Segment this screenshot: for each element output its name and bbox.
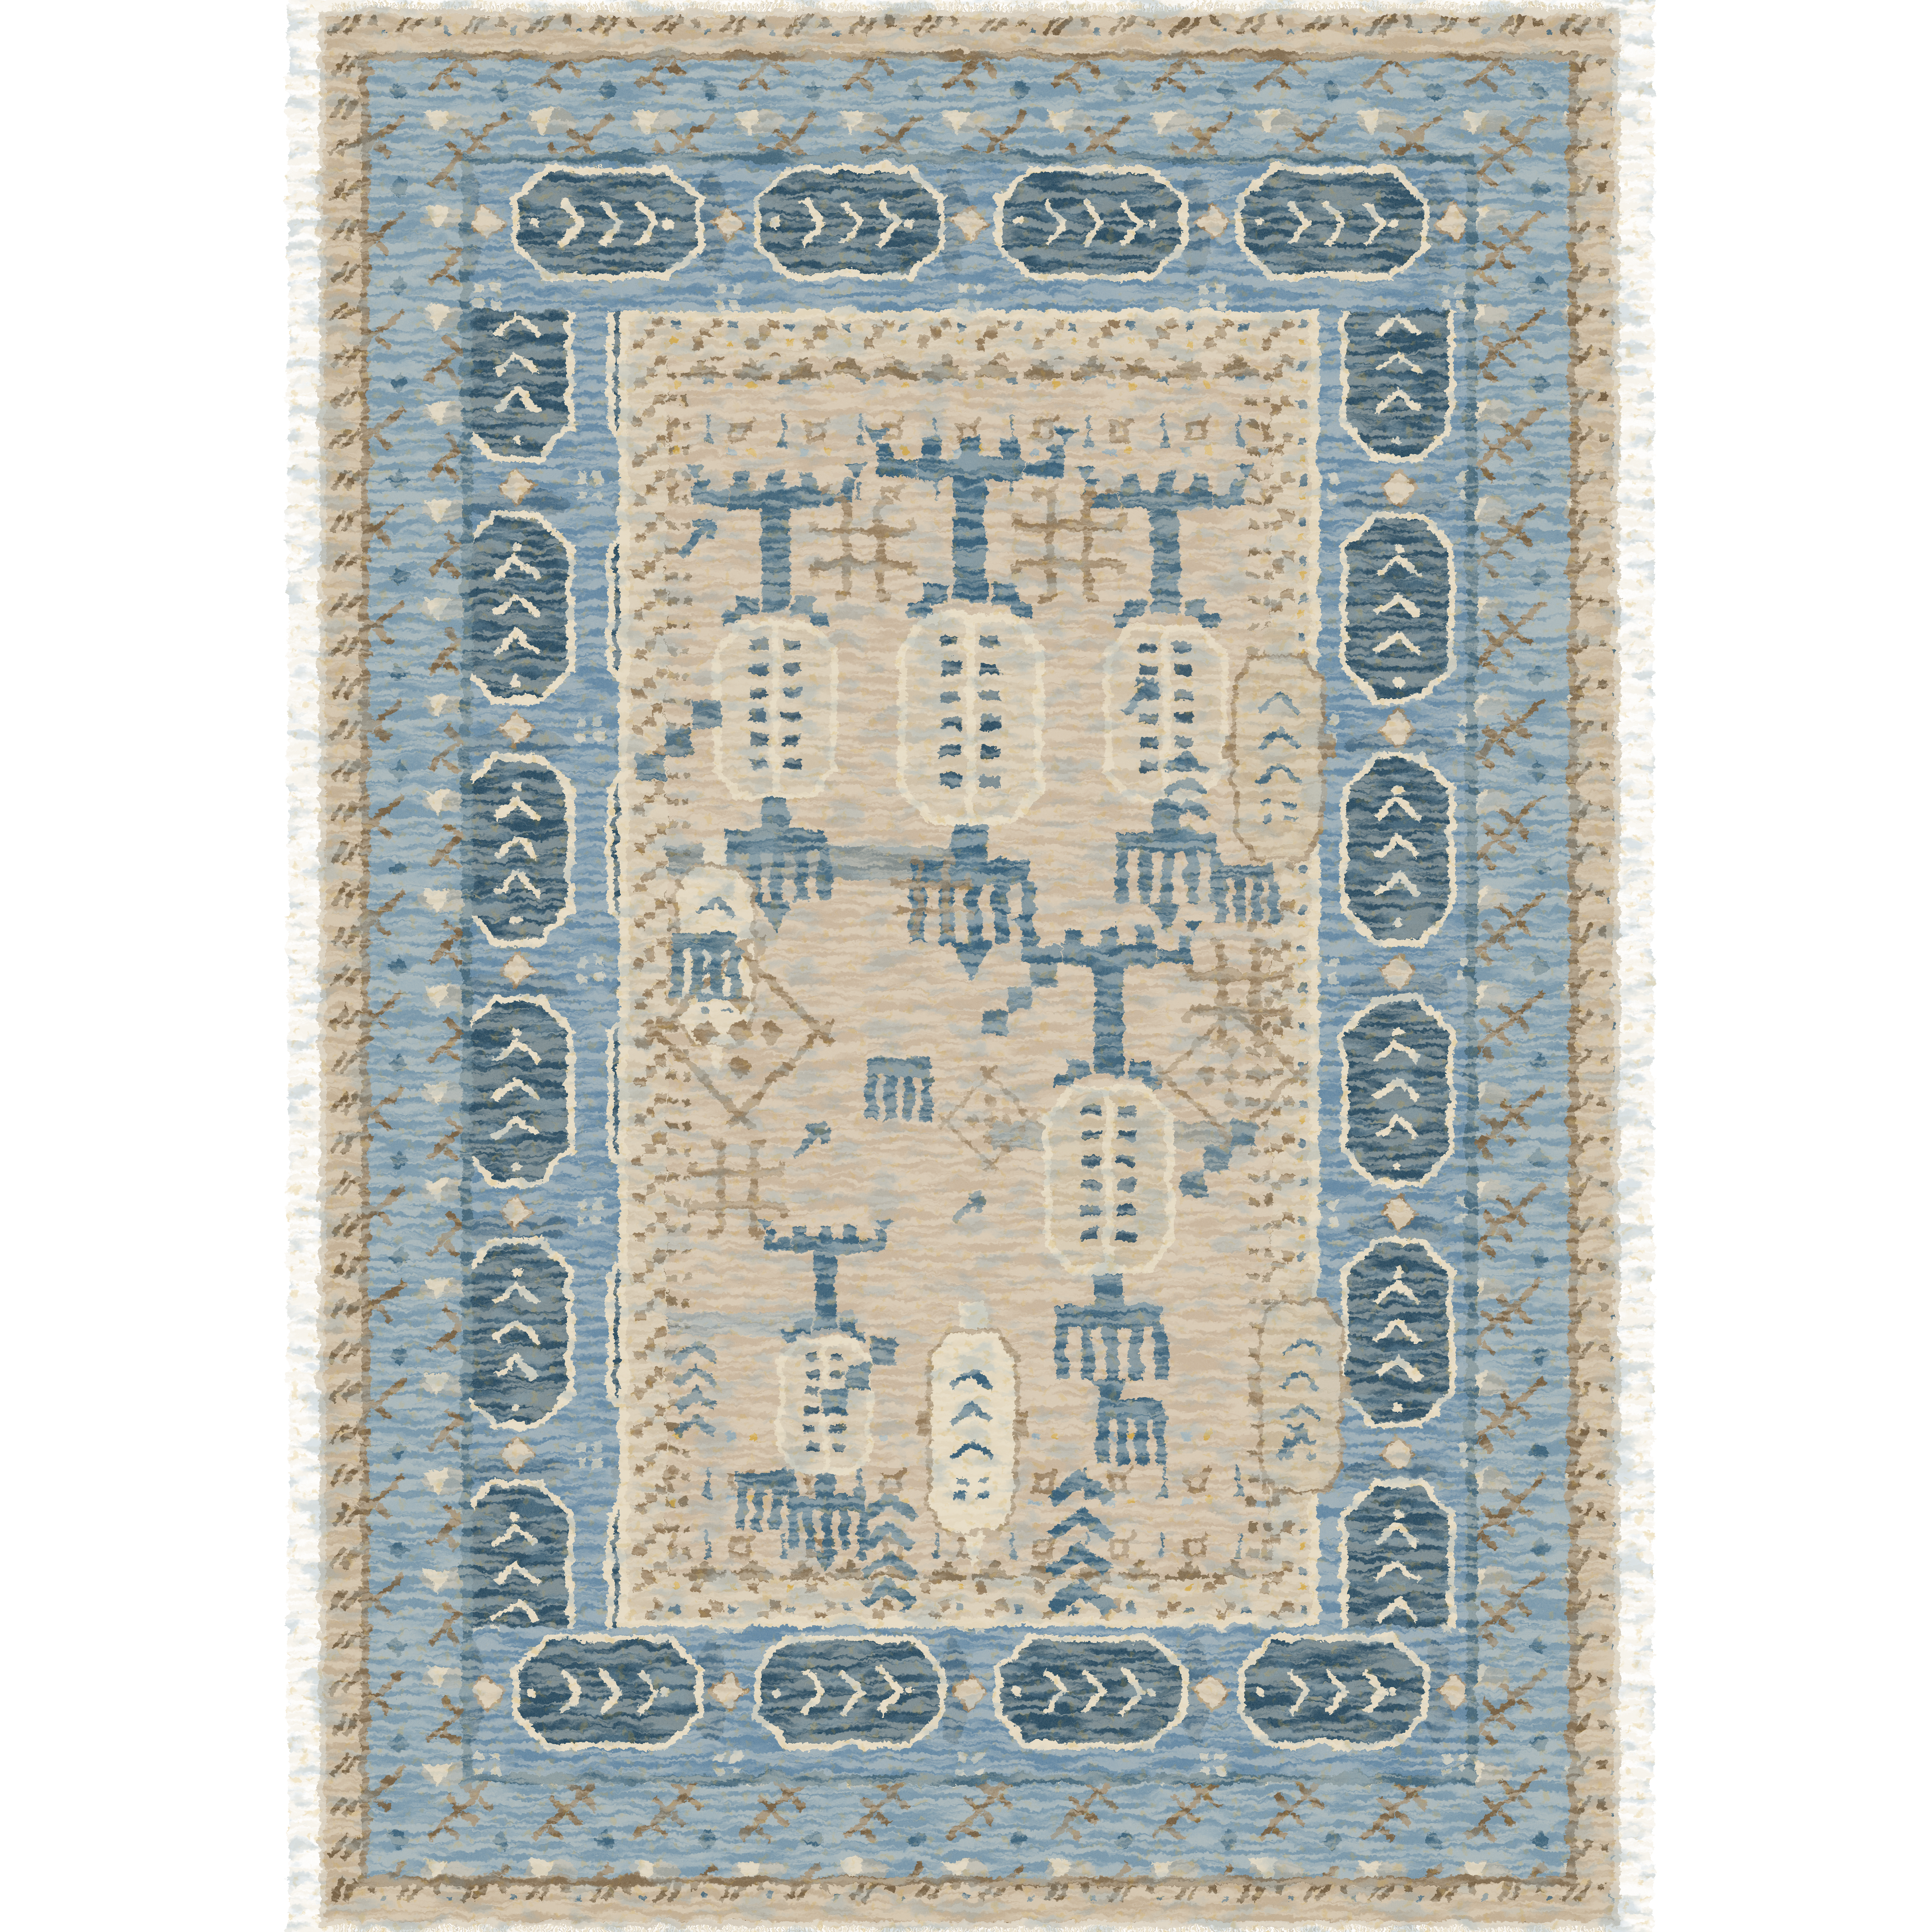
- texture-overlay-mGrain: [285, 0, 1650, 1932]
- texture-overlays: [285, 0, 1650, 1932]
- rug-illustration: [0, 0, 1932, 1932]
- area-rug: [285, 0, 1650, 1932]
- product-photo: [0, 0, 1932, 1932]
